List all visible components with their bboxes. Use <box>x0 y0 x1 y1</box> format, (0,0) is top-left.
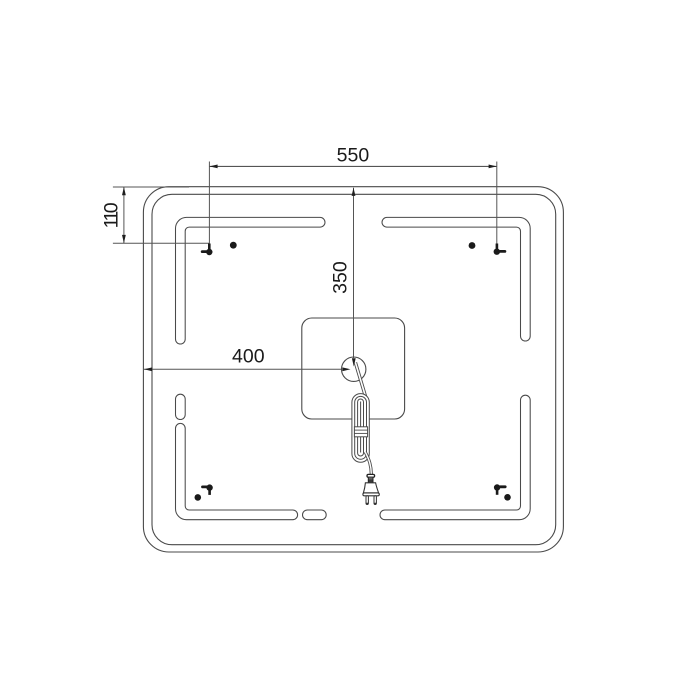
svg-text:400: 400 <box>232 345 265 367</box>
svg-text:110: 110 <box>100 202 122 228</box>
svg-text:350: 350 <box>330 261 352 294</box>
svg-text:550: 550 <box>337 145 370 167</box>
